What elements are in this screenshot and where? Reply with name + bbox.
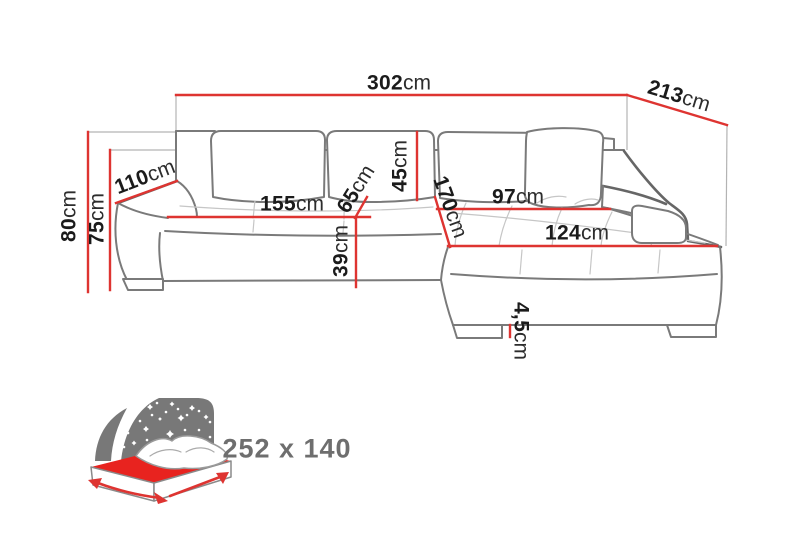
sofa-drawing — [115, 128, 721, 338]
chaise-left-edge — [441, 247, 453, 325]
dim-label-total-height: 80cm — [59, 190, 80, 242]
chaise-tuft — [658, 250, 660, 273]
chaise-foot-right — [667, 325, 716, 337]
left-arm-side — [115, 203, 127, 280]
dim-label-total-width: 302cm — [367, 73, 431, 94]
chaise-right-edge — [716, 247, 722, 325]
chaise-tuft — [520, 250, 522, 274]
dim-label-back-height: 75cm — [87, 193, 108, 245]
dim-label-leg-height: 4,5cm — [511, 302, 532, 360]
dim-label-chaise-back-width: 97cm — [492, 187, 544, 208]
chaise-front-seam — [451, 274, 717, 279]
dim-label-back-cushion-height: 45cm — [390, 140, 411, 192]
sofa-back-step — [603, 138, 614, 150]
sofa-foot-left — [123, 279, 163, 290]
sleeping-area-label: 252 x 140 — [222, 434, 351, 465]
chaise-foot-left — [453, 325, 502, 338]
left-arm-front — [118, 203, 168, 218]
chaise-arm-left-edge — [602, 186, 603, 207]
dim-label-seat-width: 155cm — [260, 194, 324, 215]
seat-cushion-bottom — [165, 231, 441, 236]
seat-tuft — [253, 220, 254, 232]
chaise-tuft — [590, 250, 592, 274]
sofa-dimension-diagram: 302cm 213cm 80cm 75cm 110cm 155cm 65cm 4… — [0, 0, 800, 533]
chaise-tuft — [499, 206, 512, 246]
extension-line — [726, 125, 727, 246]
back-cushion-1 — [211, 131, 325, 202]
sleep-function-icon — [88, 398, 231, 504]
base-bottom-edge — [163, 280, 440, 281]
base-left-edge — [159, 233, 163, 281]
dim-label-chaise-front-width: 124cm — [545, 223, 609, 244]
dim-label-seat-height: 39cm — [331, 225, 352, 277]
